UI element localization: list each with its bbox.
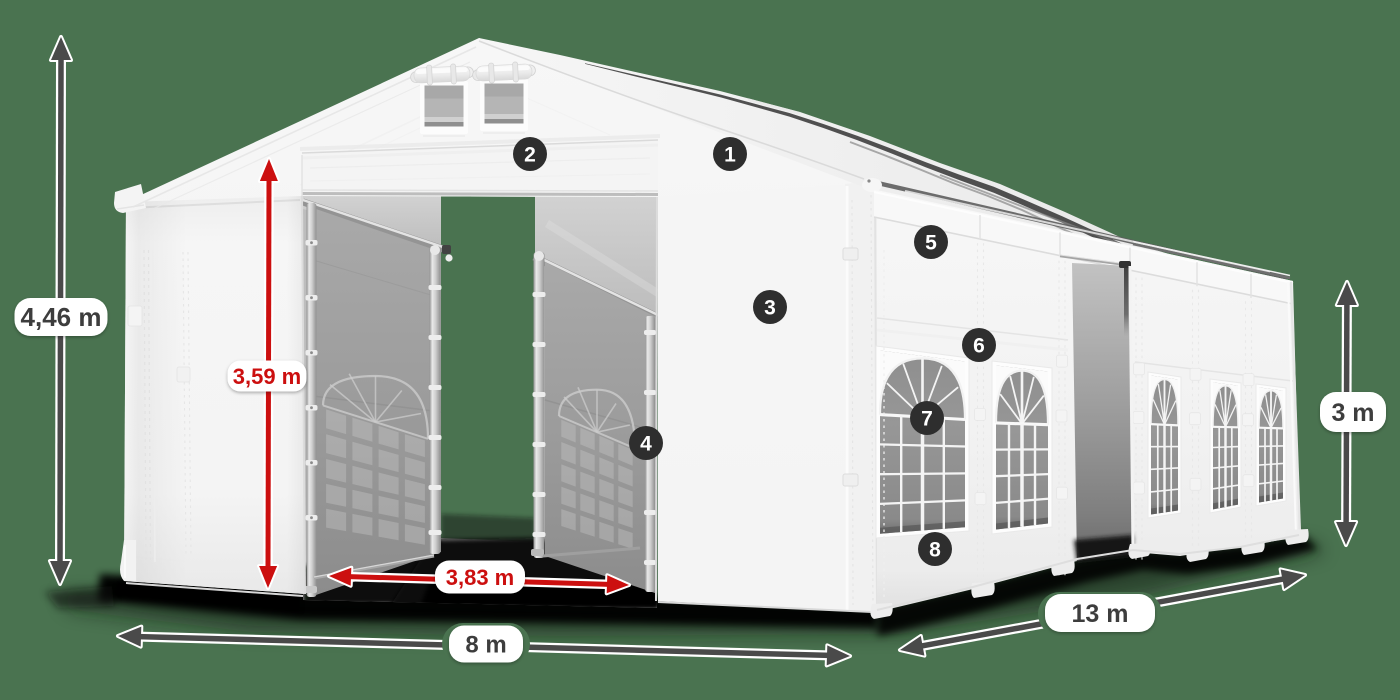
svg-text:4: 4 xyxy=(640,433,652,456)
svg-text:2: 2 xyxy=(524,144,536,167)
svg-text:8: 8 xyxy=(929,539,941,562)
svg-text:1: 1 xyxy=(724,144,736,167)
svg-text:13 m: 13 m xyxy=(1072,600,1129,628)
svg-text:4,46 m: 4,46 m xyxy=(21,302,102,332)
svg-text:5: 5 xyxy=(925,232,937,255)
svg-text:8 m: 8 m xyxy=(465,632,506,659)
svg-text:3,83 m: 3,83 m xyxy=(446,565,515,590)
svg-text:3: 3 xyxy=(764,297,776,320)
svg-text:7: 7 xyxy=(921,408,933,431)
svg-text:6: 6 xyxy=(973,335,985,358)
svg-text:3 m: 3 m xyxy=(1331,399,1374,427)
svg-text:3,59 m: 3,59 m xyxy=(233,364,302,389)
